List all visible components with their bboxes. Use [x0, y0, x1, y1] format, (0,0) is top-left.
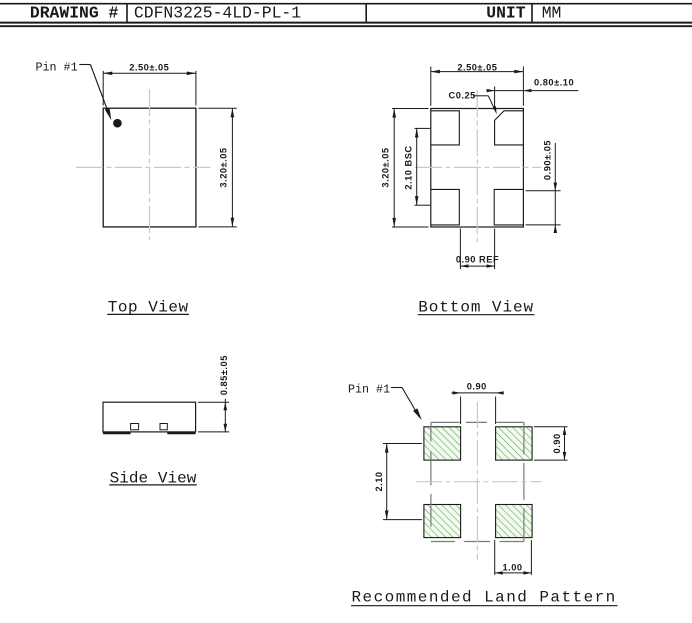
svg-text:0.85±.05: 0.85±.05 — [219, 355, 229, 395]
svg-text:3.20±.05: 3.20±.05 — [381, 147, 391, 187]
svg-text:0.80±.10: 0.80±.10 — [534, 77, 574, 87]
svg-text:UNIT: UNIT — [486, 4, 526, 23]
svg-text:MM: MM — [542, 4, 562, 23]
svg-text:2.50±.05: 2.50±.05 — [129, 63, 169, 73]
svg-text:Pin #1: Pin #1 — [348, 383, 390, 397]
svg-text:0.90±.05: 0.90±.05 — [543, 140, 553, 180]
svg-text:2.10: 2.10 — [374, 471, 384, 491]
svg-text:2.10 BSC: 2.10 BSC — [403, 145, 413, 189]
svg-text:3.20±.05: 3.20±.05 — [219, 147, 229, 187]
svg-text:0.90: 0.90 — [552, 433, 562, 453]
svg-text:1.00: 1.00 — [502, 562, 522, 572]
svg-text:DRAWING #: DRAWING # — [30, 4, 119, 23]
svg-text:Recommended Land Pattern: Recommended Land Pattern — [352, 588, 617, 606]
svg-text:Pin #1: Pin #1 — [36, 61, 78, 75]
svg-text:Bottom View: Bottom View — [418, 298, 534, 316]
svg-text:0.90 REF: 0.90 REF — [456, 255, 499, 265]
svg-text:2.50±.05: 2.50±.05 — [457, 62, 497, 72]
svg-text:0.90: 0.90 — [467, 382, 487, 392]
svg-text:CDFN3225-4LD-PL-1: CDFN3225-4LD-PL-1 — [134, 4, 301, 23]
svg-text:C0.25: C0.25 — [449, 90, 476, 100]
